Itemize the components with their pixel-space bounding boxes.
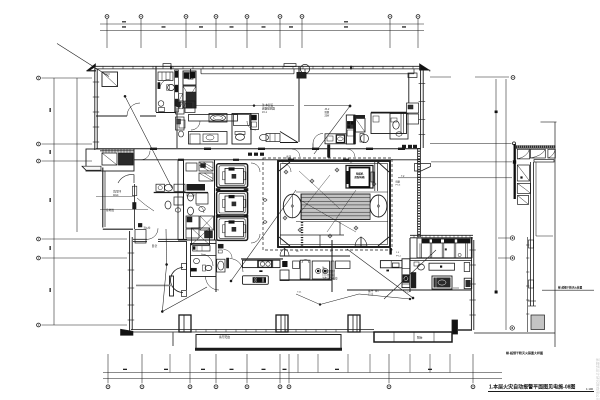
svg-text:梯-超细干粉灭火装置大样图: 梯-超细干粉灭火装置大样图 bbox=[506, 350, 543, 355]
svg-text:本层均压环: 本层均压环 bbox=[322, 270, 335, 274]
svg-text:走道: 走道 bbox=[286, 155, 292, 159]
svg-text:某建筑设计研究院有限公司: 某建筑设计研究院有限公司 bbox=[596, 358, 600, 400]
svg-text:梯-超细干粉灭火装置: 梯-超细干粉灭火装置 bbox=[558, 286, 583, 290]
svg-text:接地线: 接地线 bbox=[106, 208, 114, 212]
svg-text:电梯机: 电梯机 bbox=[356, 172, 364, 176]
svg-text:JX-2: JX-2 bbox=[325, 109, 330, 111]
svg-text:感烟探测器: 感烟探测器 bbox=[262, 107, 275, 111]
svg-text:JX-1: JX-1 bbox=[262, 111, 268, 114]
svg-text:YJ-1: YJ-1 bbox=[297, 292, 302, 294]
svg-text:1:100: 1:100 bbox=[586, 387, 593, 391]
svg-text:PY-3: PY-3 bbox=[396, 185, 401, 187]
svg-text:卫生间等电位: 卫生间等电位 bbox=[322, 277, 338, 281]
svg-text:引下线连接: 引下线连接 bbox=[322, 273, 335, 277]
svg-text:均压环: 均压环 bbox=[113, 190, 121, 194]
svg-text:40x4: 40x4 bbox=[113, 194, 119, 197]
svg-text:阳台: 阳台 bbox=[417, 336, 423, 340]
svg-text:卧室: 卧室 bbox=[152, 244, 158, 248]
svg-text:注:: 注: bbox=[322, 266, 326, 270]
svg-text:25W: 25W bbox=[325, 115, 331, 117]
svg-text:PY-1: PY-1 bbox=[396, 256, 401, 258]
svg-text:客厅阳台: 客厅阳台 bbox=[219, 335, 230, 339]
svg-text:1.本层火灾自动报警平面图见电施-08图: 1.本层火灾自动报警平面图见电施-08图 bbox=[489, 384, 575, 391]
svg-text:YJ-2: YJ-2 bbox=[405, 292, 410, 294]
svg-text:房配电箱: 房配电箱 bbox=[354, 175, 365, 179]
svg-text:注:本层设: 注:本层设 bbox=[262, 103, 274, 107]
svg-text:客厅: 客厅 bbox=[368, 289, 374, 293]
